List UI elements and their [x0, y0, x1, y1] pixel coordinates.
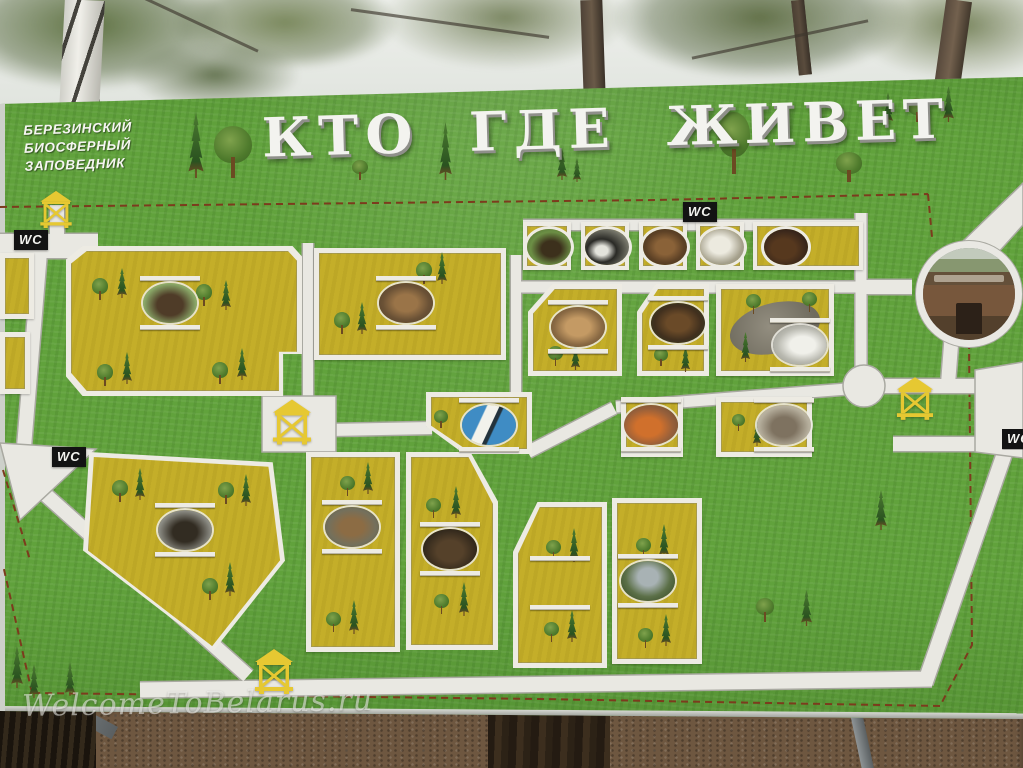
sign-bar: [420, 522, 480, 527]
black-stork-photo: [585, 229, 629, 265]
sign-bar: [322, 549, 382, 554]
moose-photo-oval: [158, 510, 212, 550]
sign-bar: [770, 318, 830, 323]
wc-sign: WC: [683, 202, 717, 222]
deciduous-tree-icon: [326, 612, 341, 632]
entrance-door: [956, 303, 982, 334]
entrance-building: [923, 248, 1015, 340]
deciduous-tree-icon: [434, 410, 448, 428]
deciduous-tree-icon: [544, 622, 559, 642]
deciduous-tree-icon: [426, 498, 441, 518]
red-deer-photo: [374, 276, 438, 330]
eagle-photo: [527, 229, 571, 265]
reserve-name: БЕРЕЗИНСКИЙ БИОСФЕРНЫЙ ЗАПОВЕДНИК: [23, 118, 133, 176]
deciduous-tree-icon: [202, 578, 218, 600]
wolf-photo-oval: [621, 561, 675, 601]
deciduous-tree-icon: [218, 482, 234, 504]
bear-photo-oval: [651, 303, 705, 343]
sign-bar: [420, 571, 480, 576]
swan-photo-oval: [773, 325, 827, 365]
sign-bar: [155, 552, 215, 557]
lynx-photo-oval: [551, 307, 605, 347]
bison-photo: [138, 276, 202, 330]
deciduous-tree-icon: [732, 414, 745, 431]
entrance-signboard: [934, 275, 1004, 282]
white-stork-photo: [457, 398, 521, 452]
sign-bar: [530, 556, 590, 561]
sign-bar: [459, 447, 519, 452]
sign-bar: [140, 276, 200, 281]
sign-bar: [548, 300, 608, 305]
deciduous-tree-icon: [836, 152, 862, 182]
deciduous-tree-icon: [97, 364, 113, 386]
sign-bar: [140, 325, 200, 330]
photo-of-map-board: БЕРЕЗИНСКИЙ БИОСФЕРНЫЙ ЗАПОВЕДНИК КТО ГД…: [0, 0, 1023, 768]
wc-sign: WC: [52, 447, 86, 467]
spotted-deer-photo: [320, 500, 384, 554]
wolf-photo: [616, 554, 680, 608]
sign-bar: [770, 367, 830, 372]
bear-photo: [646, 296, 710, 350]
raccoon-dog-photo: [752, 398, 816, 452]
white-stork-photo-oval: [462, 405, 516, 445]
sign-bar: [618, 554, 678, 559]
reserve-name-line3: ЗАПОВЕДНИК: [24, 154, 133, 176]
sign-bar: [548, 349, 608, 354]
brown-bear-photo: [764, 229, 808, 265]
sign-bar: [322, 500, 382, 505]
lynx-photo: [546, 300, 610, 354]
sign-bar: [376, 325, 436, 330]
bison-photo-oval: [143, 283, 197, 323]
wc-sign-clipped: WC: [1002, 429, 1023, 450]
sign-bar: [530, 605, 590, 610]
sign-bar: [648, 345, 708, 350]
entrance-building-photo: [916, 241, 1022, 347]
sign-bar: [459, 398, 519, 403]
sign-bar: [155, 503, 215, 508]
fox-photo-oval: [624, 405, 678, 445]
sign-bar: [621, 447, 681, 452]
watchtower-icon: [36, 190, 76, 228]
raccoon-dog-photo-oval: [757, 405, 811, 445]
red-deer-photo-oval: [379, 283, 433, 323]
swan-photo: [768, 318, 832, 372]
spotted-deer-photo-oval: [325, 507, 379, 547]
pen-fill: [5, 337, 25, 389]
deciduous-tree-icon: [340, 476, 355, 496]
white-bird-photo: [700, 229, 744, 265]
wild-boar-photo-oval: [423, 529, 477, 569]
deciduous-tree-icon: [746, 294, 761, 314]
brown-animals-photo: [643, 229, 687, 265]
deciduous-tree-icon: [638, 628, 653, 648]
wc-sign: WC: [14, 230, 48, 250]
watchtower-icon: [896, 376, 934, 420]
deciduous-tree-icon: [434, 594, 449, 614]
pen-fill: [5, 258, 29, 314]
sign-bar: [621, 398, 681, 403]
sign-bar: [618, 603, 678, 608]
deciduous-tree-icon: [212, 362, 228, 384]
birch-trunk: [59, 0, 105, 111]
empty-photo-frames: [528, 556, 592, 610]
sign-bar: [754, 398, 814, 403]
watchtower-icon: [272, 398, 312, 445]
deciduous-tree-icon: [112, 480, 128, 502]
wild-boar-photo: [418, 522, 482, 576]
sign-bar: [754, 447, 814, 452]
watermark: WelcomeToBelarus.ru: [22, 683, 374, 724]
enclosure-left-sliver-b: [0, 332, 30, 394]
deciduous-tree-icon: [654, 348, 668, 366]
deciduous-tree-icon: [214, 126, 252, 178]
moose-photo: [153, 503, 217, 557]
tree-trunk: [580, 0, 605, 98]
deciduous-tree-icon: [756, 598, 774, 622]
deciduous-tree-icon: [802, 292, 817, 312]
deciduous-tree-icon: [92, 278, 108, 300]
map-board: БЕРЕЗИНСКИЙ БИОСФЕРНЫЙ ЗАПОВЕДНИК КТО ГД…: [0, 0, 1023, 768]
fox-photo: [619, 398, 683, 452]
deciduous-tree-icon: [334, 312, 350, 334]
sign-bar: [648, 296, 708, 301]
enclosure-left-sliver-a: [0, 253, 34, 319]
wc-sign: WC: [1002, 429, 1023, 449]
sign-bar: [376, 276, 436, 281]
